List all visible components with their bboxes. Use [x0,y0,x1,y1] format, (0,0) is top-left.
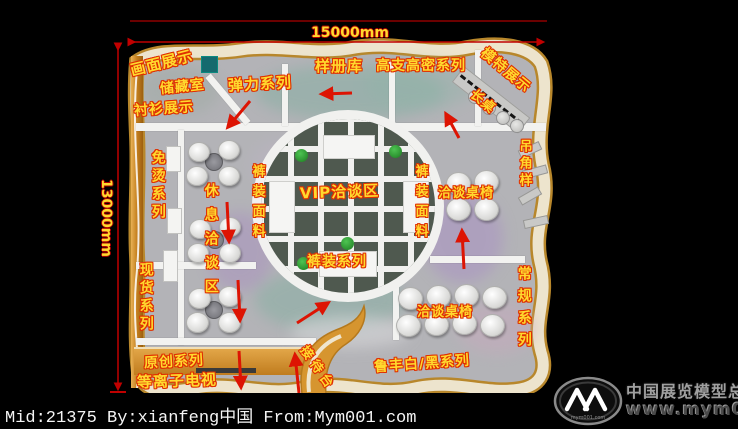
logo-subtext: mym001.com [571,415,606,421]
chair [188,142,210,162]
display-stand [163,250,178,282]
label-rest-talk-area: 休息洽谈区 [203,183,218,303]
label-pants-series: 裤装系列 [307,255,367,270]
chair [219,217,241,237]
label-high-count-series: 高支高密系列 [376,59,466,74]
chair [218,312,241,333]
mym-logo-icon: mym001.com [552,376,624,428]
model-stool [496,111,510,125]
display-stand [167,208,182,234]
plant [389,145,402,158]
chair [474,198,499,221]
display-table [323,135,375,159]
chair [218,286,241,307]
chair [218,166,240,186]
display-table [269,181,295,233]
label-stock-series: 现货系列 [138,262,153,334]
storage-cabinet [201,56,218,73]
watermark-url: www.mym001.com [626,400,738,420]
label-vip-area: VIP洽谈区 [300,184,380,203]
plant [295,149,308,162]
width-dimension-label: 15000mm [305,25,395,41]
label-talk-tables-bottom: 洽谈桌椅 [417,306,473,320]
chair [219,243,241,263]
wall-mid-left [136,262,256,269]
label-stretch-series: 弹力系列 [228,75,293,94]
height-dimension-label: 13000mm [98,178,114,258]
stool [480,314,505,337]
wall-bottom-strip [136,338,316,345]
label-sample-library: 样册库 [315,59,363,75]
label-plasma-tv: 等离子电视 [137,373,218,392]
label-non-iron-series: 免烫系列 [150,150,165,222]
plant [341,237,354,250]
chair [446,198,471,221]
label-regular-series: 常规系列 [516,266,531,354]
model-stool [510,119,524,133]
chair [186,312,209,333]
stool [482,286,507,309]
exhibition-booth-model-screenshot: 画面展示 储藏室 衬衫展示 弹力系列 样册库 高支高密系列 模特展示 长桌 免烫… [0,0,738,429]
watermark-site-name: 中国展览模型总网 [626,378,738,402]
site-watermark: mym001.com 中国展览模型总网 www.mym001.com [546,374,738,429]
stool [454,284,479,307]
chair [218,140,240,160]
label-talk-tables-right: 洽谈桌椅 [438,187,494,201]
label-hanging-samples: 吊角样 [517,139,531,190]
footer-credit-text: Mid:21375 By:xianfeng中国 From:Mym001.com [5,402,416,428]
wall-mid-right [430,256,525,263]
label-pants-fabric-right: 裤装面料 [413,164,427,244]
label-pants-fabric-left: 裤装面料 [250,164,264,244]
label-original-series: 原创系列 [144,353,205,371]
display-stand [166,146,181,172]
